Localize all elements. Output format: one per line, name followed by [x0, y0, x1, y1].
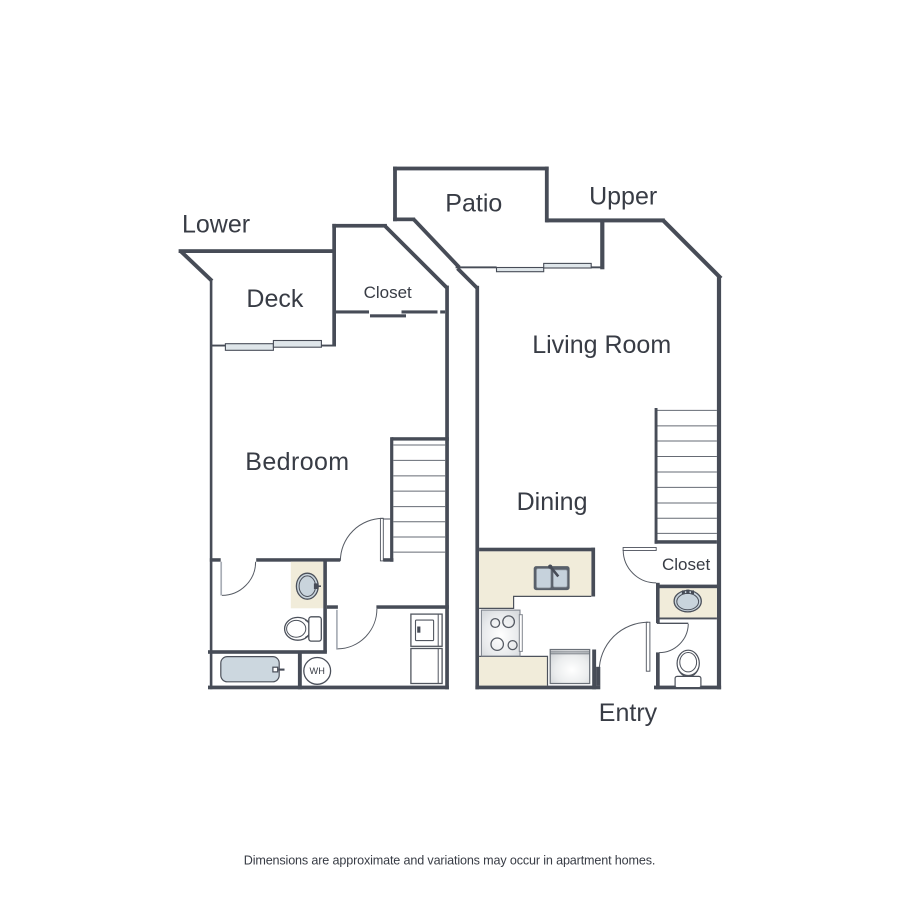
svg-text:Closet: Closet	[662, 555, 710, 574]
svg-text:WH: WH	[310, 666, 325, 676]
svg-text:Deck: Deck	[246, 285, 303, 313]
svg-text:Living Room: Living Room	[532, 331, 671, 359]
svg-text:Lower: Lower	[182, 210, 250, 238]
svg-text:Entry: Entry	[599, 699, 658, 727]
svg-text:Upper: Upper	[589, 183, 657, 211]
svg-text:Dining: Dining	[517, 488, 588, 516]
svg-text:Patio: Patio	[445, 190, 502, 218]
svg-text:Bedroom: Bedroom	[245, 448, 349, 476]
svg-text:Closet: Closet	[364, 283, 412, 302]
svg-text:Dimensions are approximate and: Dimensions are approximate and variation…	[244, 854, 655, 868]
